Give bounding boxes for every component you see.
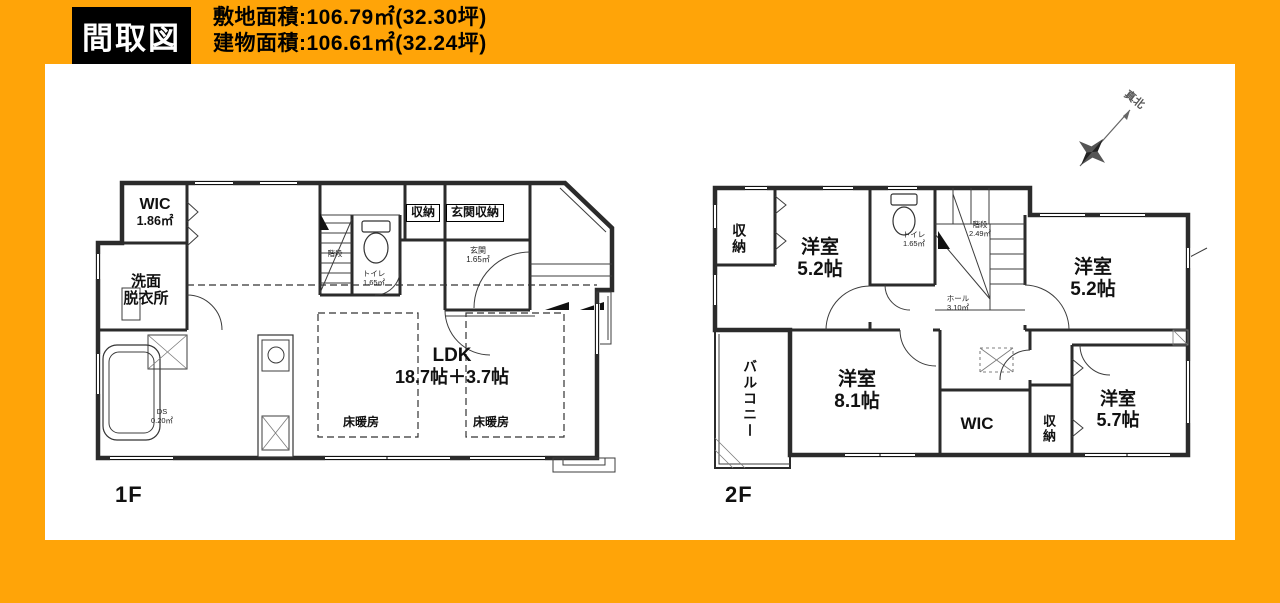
- room-label-ds: DS 0.20㎡: [142, 408, 182, 425]
- floor2-stairs: [935, 188, 1025, 310]
- room-label-yukadanbo2: 床暖房: [456, 416, 526, 430]
- room-label-genkan-shuno: 玄関収納: [446, 204, 504, 222]
- room-label-yoshitsu-57: 洋室 5.7帖: [1058, 389, 1178, 430]
- room-label-wic-1f: WIC 1.86㎡: [115, 196, 195, 229]
- room-label-yoshitsu-52b: 洋室 5.2帖: [1033, 257, 1153, 301]
- floor-plan-drawing: [45, 64, 1235, 540]
- toilet-icon-2f: [891, 194, 917, 205]
- room-label-shuno-2f-se: 収納: [1040, 400, 1055, 458]
- room-label-shuno-1f: 収納: [406, 204, 440, 222]
- folding-door-icon-2f-se: [1072, 359, 1083, 377]
- site-area-text: 敷地面積:106.79㎡(32.30坪): [213, 5, 487, 31]
- floor2-label: 2F: [725, 482, 753, 507]
- room-label-kaidan-1f: 階段: [315, 250, 355, 259]
- area-summary: 敷地面積:106.79㎡(32.30坪) 建物面積:106.61㎡(32.24坪…: [213, 5, 487, 57]
- room-label-hall: ホール 3.10㎡: [935, 295, 981, 312]
- room-label-shuno-2f-nw: 収納: [731, 209, 747, 269]
- room-label-toilet-1f: トイレ 1.65㎡: [352, 270, 396, 287]
- room-label-toilet-2f: トイレ 1.65㎡: [890, 231, 938, 248]
- toilet-icon-1f: [362, 221, 390, 232]
- building-area-text: 建物面積:106.61㎡(32.24坪): [213, 31, 487, 57]
- floor1-door-arcs: [187, 252, 530, 355]
- room-label-wic-2f: WIC: [947, 414, 1007, 434]
- room-label-kaidan-2f: 階段 2.49㎡: [957, 221, 1003, 238]
- room-label-yoshitsu-52a: 洋室 5.2帖: [760, 237, 880, 281]
- floor1-label: 1F: [115, 482, 143, 507]
- folding-door-icon-2f-nw: [775, 196, 786, 214]
- bathtub-icon: [103, 345, 160, 440]
- room-label-yukadanbo1: 床暖房: [326, 416, 396, 430]
- plan-panel: WIC 1.86㎡ 洗面 脱衣所 LDK 18.7帖＋3.7帖 床暖房 床暖房 …: [45, 64, 1235, 540]
- floor-plan-page: 間取図 敷地面積:106.79㎡(32.30坪) 建物面積:106.61㎡(32…: [0, 0, 1280, 603]
- room-label-ldk: LDK 18.7帖＋3.7帖: [372, 345, 532, 388]
- room-label-senmen: 洗面 脱衣所: [102, 273, 190, 308]
- room-label-balcony: バルコニー: [742, 351, 758, 446]
- room-label-genkan: 玄関 1.65㎡: [458, 246, 498, 264]
- kitchen-icon: [258, 335, 293, 457]
- room-label-yoshitsu-81: 洋室 8.1帖: [797, 369, 917, 413]
- compass-icon: [1068, 110, 1130, 176]
- title-badge: 間取図: [72, 7, 191, 65]
- floor2-fixtures: [891, 194, 917, 235]
